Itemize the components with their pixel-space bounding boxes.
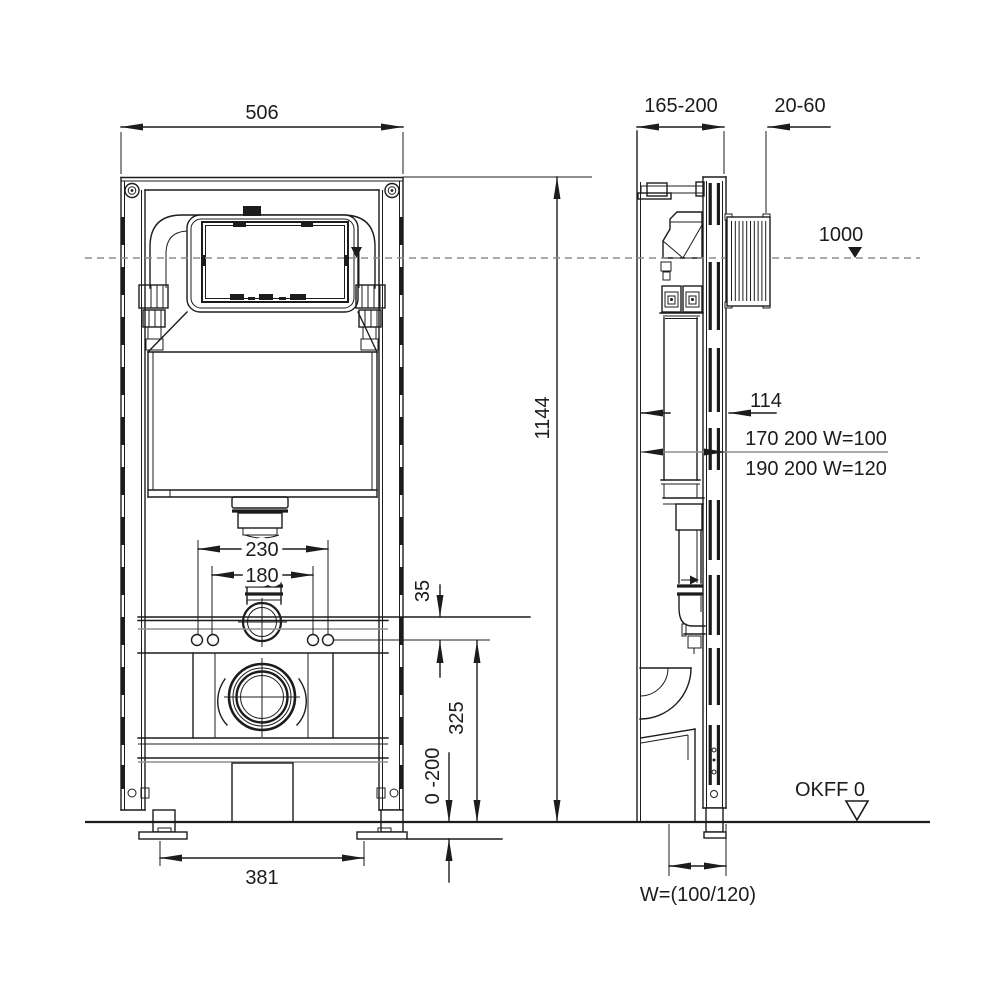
flush-plate-window bbox=[187, 206, 362, 312]
fixing-hole bbox=[308, 635, 319, 646]
dim-1000-label: 1000 bbox=[819, 224, 864, 246]
drain-section bbox=[138, 653, 388, 822]
dim-1144-label: 1144 bbox=[532, 396, 554, 439]
frame-screw-right bbox=[385, 184, 399, 198]
floor-level-marker: OKFF 0 bbox=[795, 779, 868, 820]
dim-230-label: 230 bbox=[245, 539, 278, 561]
side-foot bbox=[706, 808, 723, 832]
fixing-hole bbox=[208, 635, 219, 646]
flush-plate-protection-box bbox=[725, 214, 770, 308]
foot-left bbox=[139, 810, 187, 839]
dim-381: 381 bbox=[160, 841, 364, 889]
dim-1000: 1000 bbox=[819, 224, 864, 258]
side-view bbox=[637, 131, 770, 838]
dim-506-label: 506 bbox=[245, 102, 278, 124]
level-triangle-icon bbox=[846, 801, 868, 820]
foot-right bbox=[357, 810, 407, 839]
dim-drain-width: W=(100/120) bbox=[640, 824, 756, 906]
dim-325-label: 325 bbox=[446, 701, 468, 734]
dim-165-200-label: 165-200 bbox=[644, 95, 717, 117]
flush-bend-pipe bbox=[238, 583, 287, 647]
dim-20-60: 20-60 bbox=[766, 95, 830, 213]
fixing-hole bbox=[192, 635, 203, 646]
side-drain-bend bbox=[640, 668, 695, 821]
cistern-tank bbox=[148, 312, 377, 497]
dim-w120-label: 190 200 W=120 bbox=[745, 458, 887, 480]
dim-35-label: 35 bbox=[412, 580, 434, 602]
dim-180-label: 180 bbox=[245, 565, 278, 587]
wc-installation-frame-drawing: 506 1144 230 180 bbox=[0, 0, 1000, 1000]
dim-20-60-label: 20-60 bbox=[774, 95, 825, 117]
front-view bbox=[121, 178, 530, 840]
dim-35: 35 bbox=[412, 580, 444, 677]
dim-506: 506 bbox=[121, 102, 403, 174]
wall-bracket bbox=[638, 182, 704, 199]
flow-direction-arrow bbox=[690, 576, 699, 585]
window-top-tab bbox=[243, 206, 261, 216]
dim-1144: 1144 bbox=[403, 177, 592, 822]
dim-381-label: 381 bbox=[245, 867, 278, 889]
side-cistern bbox=[660, 212, 705, 654]
fixing-hole bbox=[323, 635, 334, 646]
dim-flush-pipe-variants: 170 200 W=100 190 200 W=120 bbox=[641, 428, 888, 480]
flush-valve-outlet bbox=[232, 497, 288, 538]
dim-0-200-label: 0 -200 bbox=[422, 748, 444, 805]
frame-screw-left bbox=[125, 184, 139, 198]
dim-w100-label: 170 200 W=100 bbox=[745, 428, 887, 450]
dim-165-200: 165-200 bbox=[637, 95, 724, 174]
drain-outlet-box bbox=[232, 763, 293, 822]
dim-w-label: W=(100/120) bbox=[640, 884, 756, 906]
dim-325: 325 bbox=[446, 641, 481, 822]
side-rail-slots bbox=[709, 183, 720, 785]
fixing-bracket bbox=[138, 617, 530, 646]
okff-label: OKFF 0 bbox=[795, 779, 865, 801]
technical-drawing-page: 506 1144 230 180 bbox=[0, 0, 1000, 1000]
water-valve-left bbox=[139, 285, 168, 350]
dim-0-200: 0 -200 bbox=[407, 748, 502, 882]
dim-114-label: 114 bbox=[750, 390, 782, 412]
side-rail bbox=[703, 177, 726, 838]
